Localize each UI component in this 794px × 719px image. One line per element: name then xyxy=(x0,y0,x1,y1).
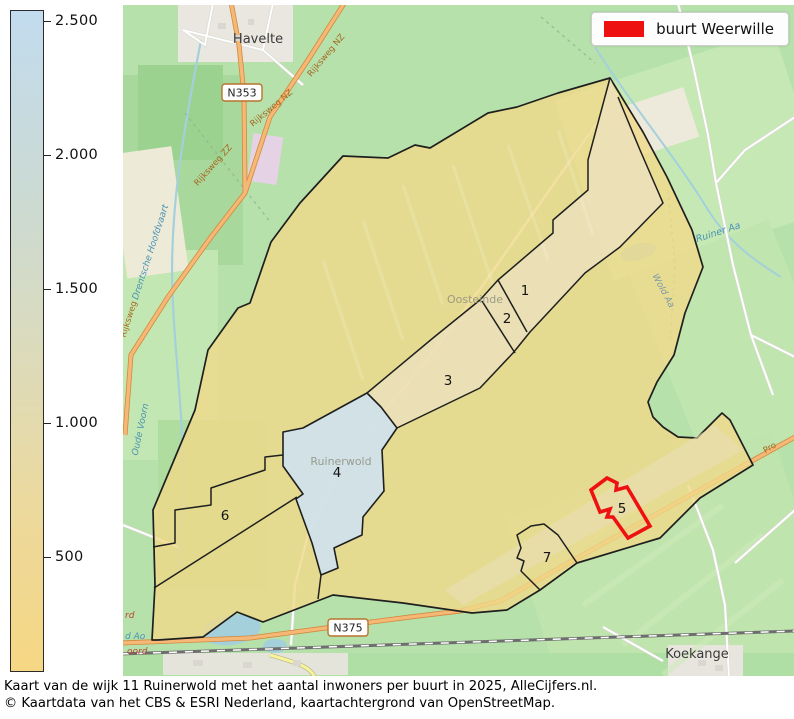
road-shield-n353: N353 xyxy=(222,84,262,101)
tick-mark xyxy=(44,423,51,424)
legend-swatch-red xyxy=(604,21,644,37)
map-svg: Havelte Koekange Oosteinde Ruinerwold N3… xyxy=(123,5,794,676)
page: 2.500 2.000 1.500 1.000 500 xyxy=(0,0,794,719)
legend: buurt Weerwille xyxy=(591,12,789,46)
shield-label: N353 xyxy=(227,87,256,100)
shield-label: N375 xyxy=(333,622,362,635)
region-number-4: 4 xyxy=(333,465,342,481)
map-canvas: Havelte Koekange Oosteinde Ruinerwold N3… xyxy=(123,5,794,676)
tick-mark xyxy=(44,155,51,156)
tick-label: 1.000 xyxy=(55,415,98,431)
edge-label-oord: oord xyxy=(127,647,148,657)
lake-small xyxy=(263,639,287,653)
tick-label: 500 xyxy=(55,549,84,565)
town-label-koekange: Koekange xyxy=(665,647,729,662)
region-number-3: 3 xyxy=(444,373,453,389)
region-number-2: 2 xyxy=(503,311,512,327)
caption: Kaart van de wijk 11 Ruinerwold met het … xyxy=(4,678,597,712)
tick-mark xyxy=(44,289,51,290)
tick-mark xyxy=(44,21,51,22)
colorbar-gradient xyxy=(10,10,44,672)
town-label-havelte: Havelte xyxy=(233,32,283,47)
edge-label-rd: rd xyxy=(125,611,135,621)
region-number-7: 7 xyxy=(543,550,552,566)
caption-line-1: Kaart van de wijk 11 Ruinerwold met het … xyxy=(4,678,597,695)
tick-label: 2.000 xyxy=(55,147,98,163)
tick-mark xyxy=(44,557,51,558)
region-number-1: 1 xyxy=(521,283,530,299)
region-number-5: 5 xyxy=(618,501,627,517)
edge-label-d-ao: d Ao xyxy=(125,632,146,642)
tick-label: 1.500 xyxy=(55,281,98,297)
caption-line-2: © Kaartdata van het CBS & ESRI Nederland… xyxy=(4,695,597,712)
place-label-oosteinde: Oosteinde xyxy=(447,293,503,306)
road-shield-n375: N375 xyxy=(328,619,368,636)
region-number-6: 6 xyxy=(221,508,230,524)
legend-label: buurt Weerwille xyxy=(656,20,774,38)
tick-label: 2.500 xyxy=(55,13,98,29)
colorbar: 2.500 2.000 1.500 1.000 500 xyxy=(10,10,120,672)
